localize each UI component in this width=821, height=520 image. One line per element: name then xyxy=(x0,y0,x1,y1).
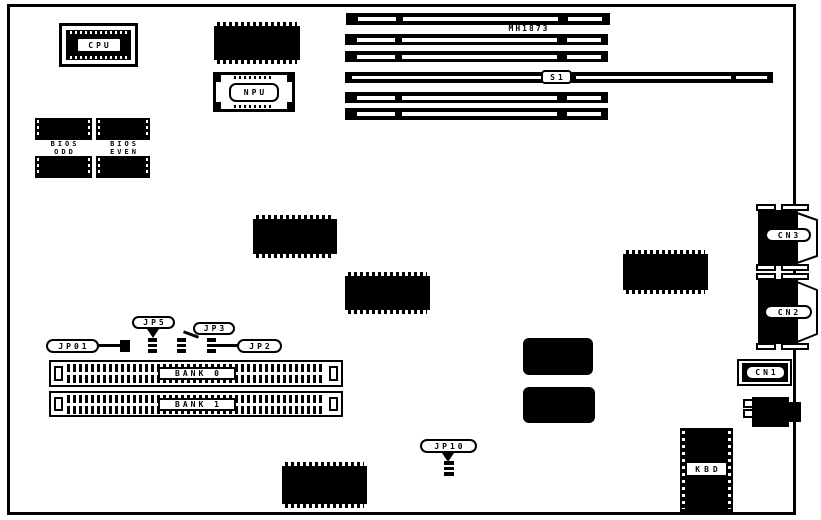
expansion-slot-6 xyxy=(345,108,608,120)
simm-latch-icon xyxy=(54,366,63,381)
slot-notch xyxy=(403,17,558,21)
keyboard-din-port xyxy=(752,397,789,427)
npu-label: NPU xyxy=(229,83,279,102)
socket-corner xyxy=(216,102,221,109)
ic-chip-mid-center xyxy=(345,276,430,310)
slot-notch xyxy=(576,76,731,79)
ic-chip-mid-right xyxy=(623,254,708,290)
pin-row-icon xyxy=(88,120,90,138)
slot-notch xyxy=(357,112,395,116)
expansion-slot-3 xyxy=(345,51,608,62)
jp3-jumper xyxy=(177,338,186,353)
slot-notch xyxy=(402,38,557,42)
pin-row-icon xyxy=(285,462,364,466)
expansion-slot-1 xyxy=(346,13,610,25)
bios-odd-label-line1: BIOS xyxy=(48,140,80,148)
simm-latch-icon xyxy=(54,397,63,411)
jp2-label: JP2 xyxy=(237,339,282,353)
pin-row-icon xyxy=(37,158,39,176)
cn1-label: CN1 xyxy=(745,365,786,380)
pin-row-icon xyxy=(70,56,127,59)
bios-even-label-line1: BIOS xyxy=(107,140,139,148)
slot-notch xyxy=(567,38,601,42)
pin-row-icon xyxy=(217,60,297,64)
pin-row-icon xyxy=(234,105,274,108)
slot-notch xyxy=(402,55,557,59)
chip-body xyxy=(96,156,150,178)
jp2-jumper xyxy=(207,338,216,353)
socket-corner xyxy=(287,102,292,109)
pin-row-icon xyxy=(88,158,90,176)
jp3-label: JP3 xyxy=(193,322,235,335)
ic-chip-bottom xyxy=(282,466,367,504)
pin-row-icon xyxy=(98,158,100,176)
cpu-socket: CPU xyxy=(59,23,138,67)
cn2-mount-tab xyxy=(781,343,809,350)
ic-chip-mid-left xyxy=(253,219,337,254)
simm-latch-icon xyxy=(329,366,338,381)
pin-row-icon xyxy=(37,120,39,138)
bank1-label: BANK 1 xyxy=(158,398,236,411)
expansion-slot-5 xyxy=(345,92,608,103)
slot-notch xyxy=(567,55,601,59)
pin-row-icon xyxy=(234,76,274,79)
cpu-label: CPU xyxy=(77,38,121,52)
socket-corner xyxy=(287,75,292,82)
kbd-controller-chip: KBD xyxy=(680,428,733,512)
keyboard-din-pin xyxy=(743,399,754,408)
bank0-label: BANK 0 xyxy=(158,367,236,380)
ic-chip-top xyxy=(214,26,300,60)
pin-row-icon xyxy=(626,250,705,254)
slot-notch xyxy=(352,76,541,79)
chip-body xyxy=(35,156,92,178)
pin-row-icon xyxy=(285,504,364,508)
slot-notch xyxy=(358,17,396,21)
bios-odd-label-line2: ODD xyxy=(51,148,76,156)
simm-latch-icon xyxy=(329,397,338,411)
cpu-chip: CPU xyxy=(66,30,131,60)
pin-row-icon xyxy=(146,120,148,138)
pin-row-icon xyxy=(146,158,148,176)
jp5-pointer xyxy=(147,329,159,338)
pin-row-icon xyxy=(217,22,297,26)
slot-notch xyxy=(402,112,557,116)
socket-corner xyxy=(216,75,221,82)
jp01-label: JP01 xyxy=(46,339,99,353)
ic-chip-plain-1 xyxy=(523,338,593,375)
jp5-jumper xyxy=(148,338,157,353)
slot-notch xyxy=(567,96,601,100)
jp01-wire xyxy=(99,344,121,347)
expansion-slot-2 xyxy=(345,34,608,45)
pin-row-icon xyxy=(728,431,731,509)
pin-row-icon xyxy=(682,431,685,509)
jp01-jumper xyxy=(120,340,130,352)
pin-row-icon xyxy=(348,310,427,314)
jp2-wire xyxy=(216,344,238,347)
keyboard-din-port-face xyxy=(786,402,801,422)
pin-row-icon xyxy=(626,290,705,294)
bios-odd-label: BIOS ODD xyxy=(35,140,92,156)
bios-even-chip: BIOS EVEN xyxy=(96,118,150,178)
pin-row-icon xyxy=(98,120,100,138)
slot-notch xyxy=(736,76,767,79)
keyboard-din-pin xyxy=(743,409,754,418)
cn3-mount-tab xyxy=(781,264,809,271)
slot-notch xyxy=(402,96,557,100)
npu-socket: NPU xyxy=(213,72,295,112)
cn3-mount-tab xyxy=(756,264,776,271)
slot-notch xyxy=(568,17,602,21)
pin-row-icon xyxy=(348,272,427,276)
motherboard-diagram: MH1873 S1 CPU xyxy=(0,0,821,520)
slot-notch xyxy=(357,55,395,59)
bios-odd-chip: BIOS ODD xyxy=(35,118,92,178)
slot-notch xyxy=(357,38,395,42)
jp10-label: JP10 xyxy=(420,439,477,453)
cn2-label: CN2 xyxy=(764,305,812,319)
s1-slot-label: S1 xyxy=(541,70,572,84)
pin-row-icon xyxy=(256,215,334,219)
chip-body xyxy=(96,118,150,140)
slot-notch xyxy=(567,112,601,116)
jp5-label: JP5 xyxy=(132,316,175,329)
pin-row-icon xyxy=(256,254,334,258)
jp10-jumper xyxy=(444,461,454,476)
cn2-mount-tab xyxy=(756,343,776,350)
slot-notch xyxy=(357,96,395,100)
cn3-label: CN3 xyxy=(765,228,811,242)
board-model-label: MH1873 xyxy=(497,24,561,34)
pin-row-icon xyxy=(70,31,127,34)
kbd-label: KBD xyxy=(687,463,726,475)
bios-even-label: BIOS EVEN xyxy=(96,140,150,156)
chip-body xyxy=(35,118,92,140)
ic-chip-plain-2 xyxy=(523,387,595,423)
bios-even-label-line2: EVEN xyxy=(107,148,139,156)
